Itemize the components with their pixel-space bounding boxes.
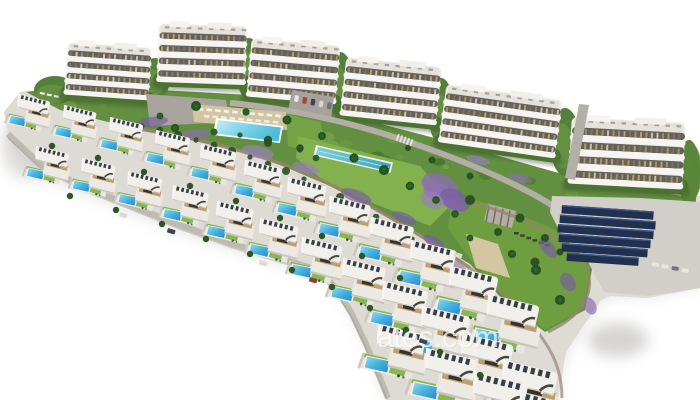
svg-text:ates.com: ates.com <box>377 321 499 354</box>
